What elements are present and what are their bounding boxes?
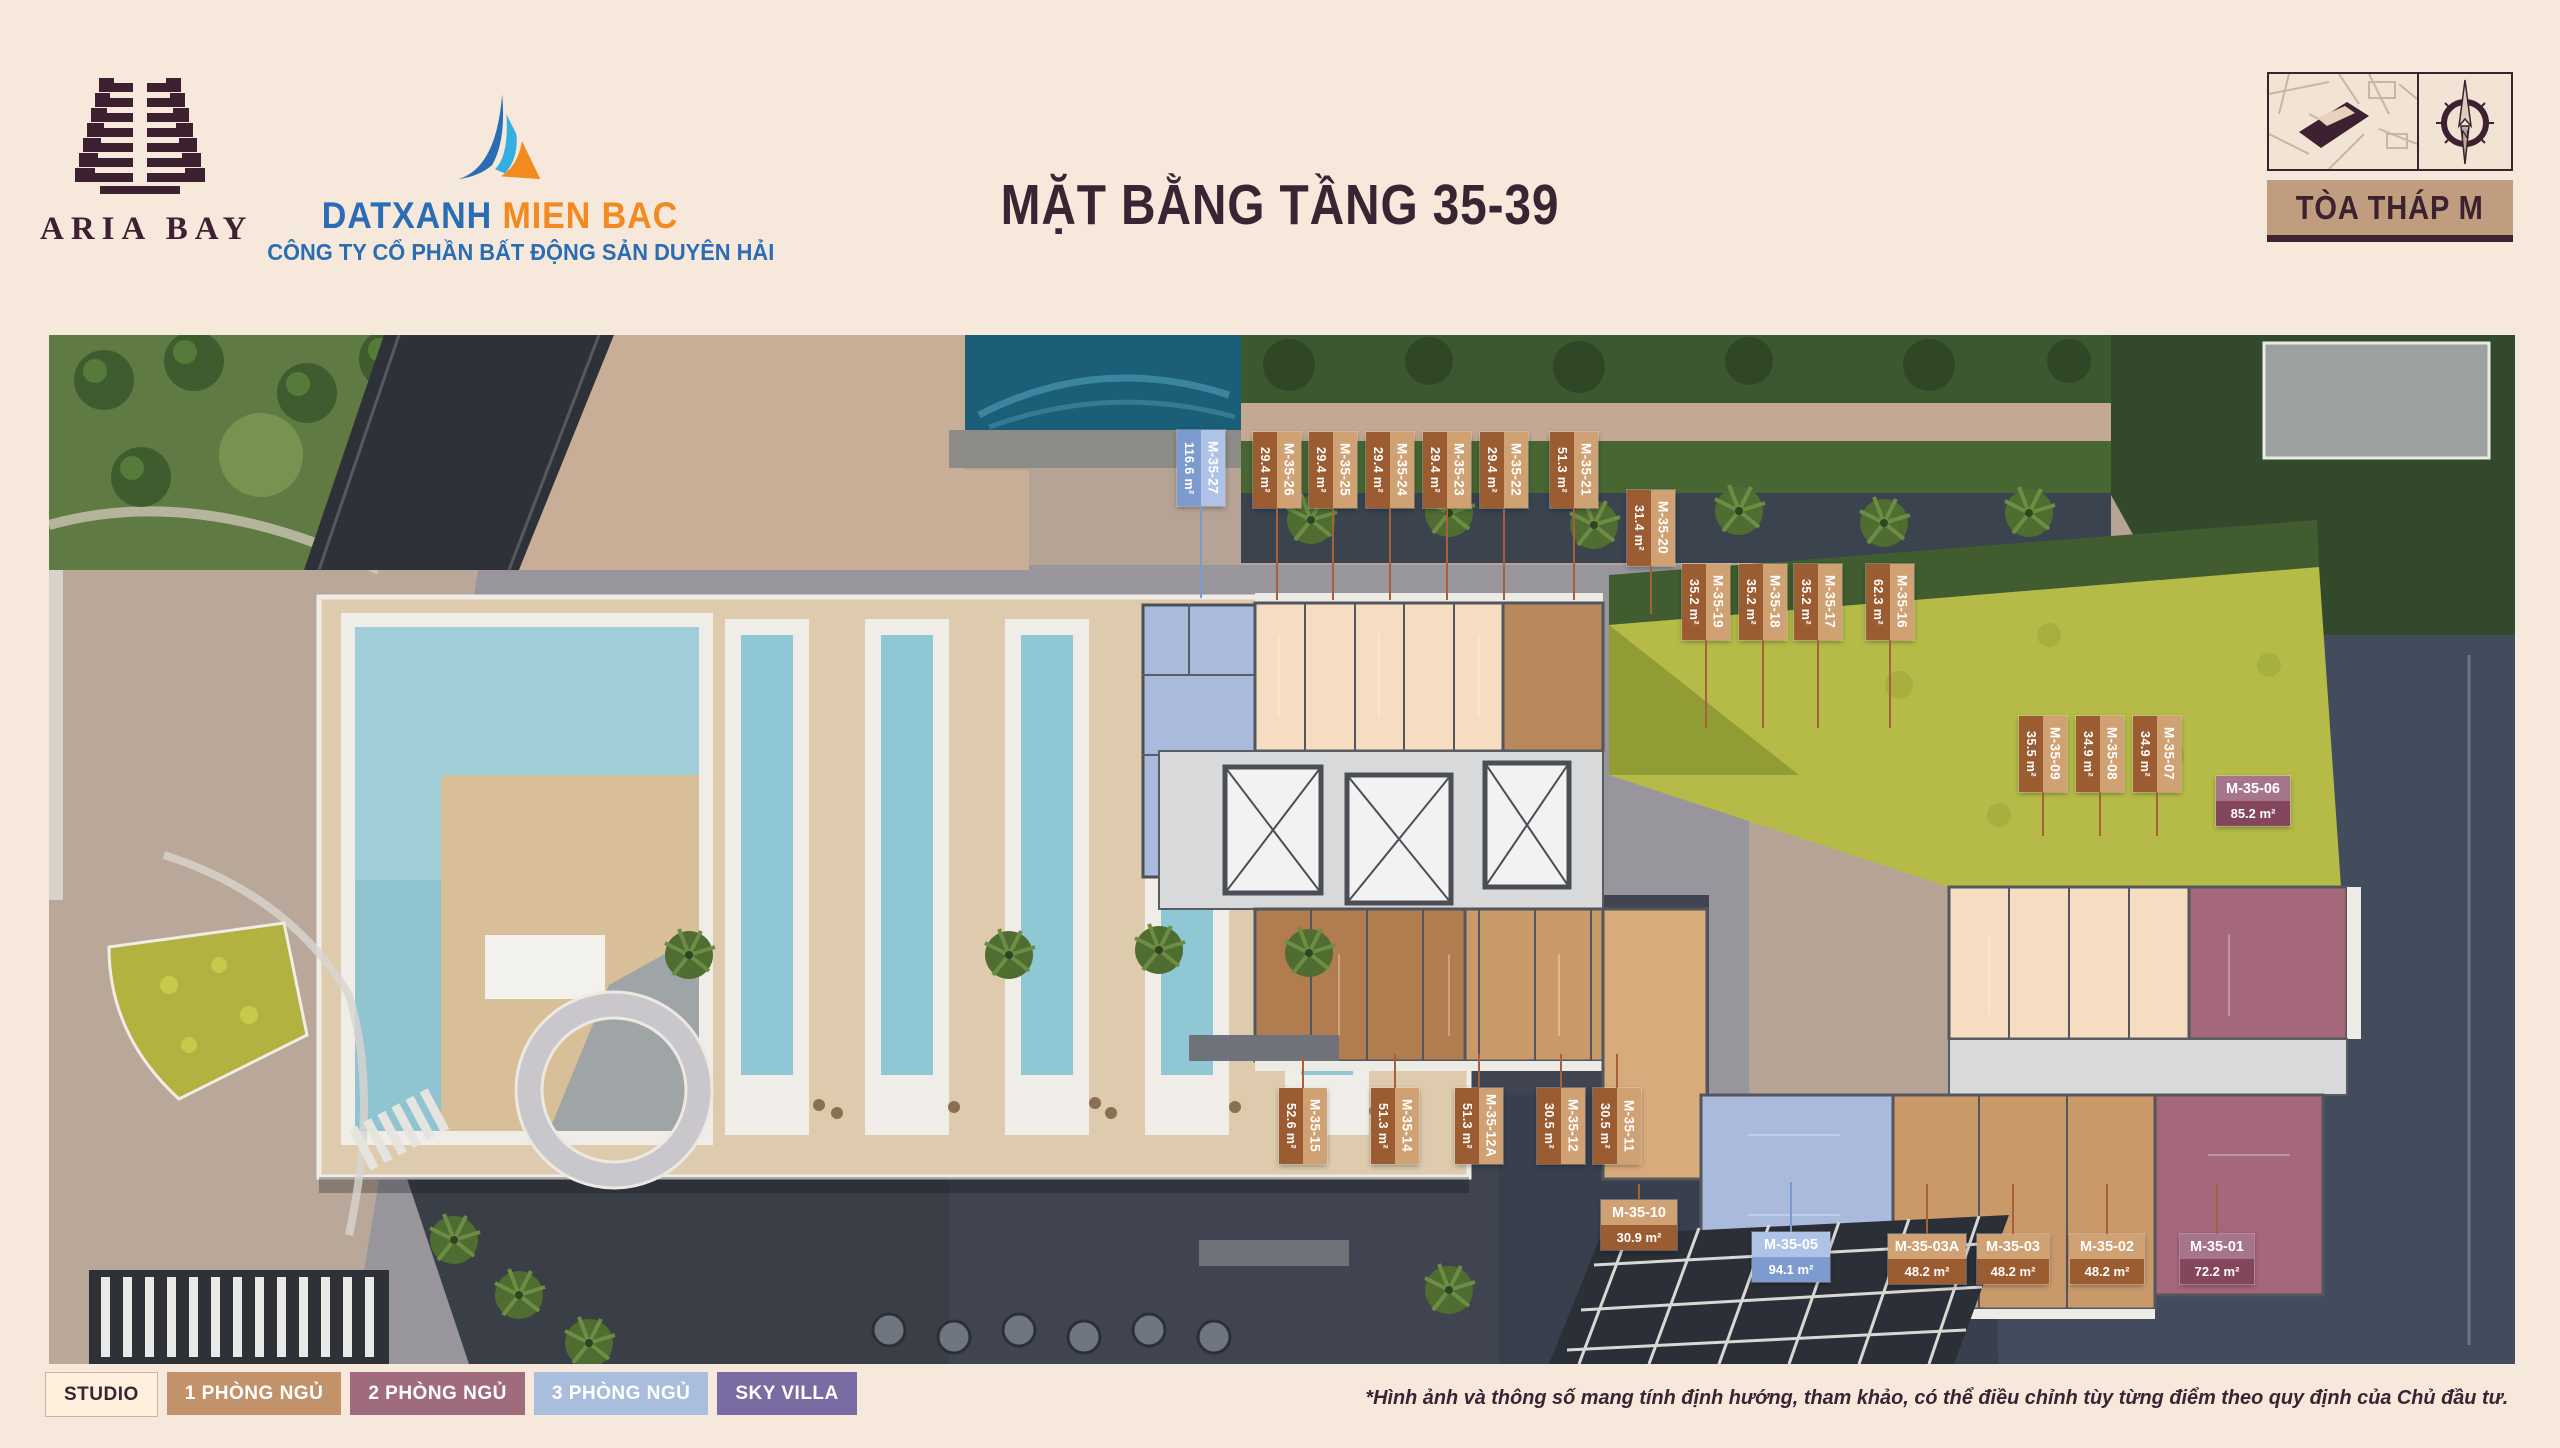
- unit-area: 35.5 m²: [2019, 716, 2043, 792]
- unit-label-m-35-22: 29.4 m²M-35-22: [1480, 432, 1528, 508]
- unit-area: 29.4 m²: [1423, 432, 1447, 508]
- unit-area: 34.9 m²: [2133, 716, 2157, 792]
- unit-area: 34.9 m²: [2076, 716, 2100, 792]
- unit-id: M-35-03: [1977, 1234, 2049, 1259]
- unit-id: M-35-08: [2100, 716, 2124, 792]
- legend-item-1-bedroom: 1 PHÒNG NGỦ: [167, 1372, 342, 1415]
- unit-id: M-35-03A: [1888, 1234, 1966, 1259]
- unit-id: M-35-20: [1651, 490, 1675, 566]
- unit-label-m-35-10: 30.9 m²M-35-10: [1601, 1200, 1677, 1250]
- page-title: MẶT BẰNG TẦNG 35-39: [1001, 172, 1560, 238]
- unit-id: M-35-09: [2043, 716, 2067, 792]
- unit-label-m-35-15: 52.6 m²M-35-15: [1279, 1088, 1327, 1164]
- aria-bay-brand: ARIA BAY: [40, 78, 240, 248]
- unit-id: M-35-16: [1890, 564, 1914, 640]
- aria-bay-logo-icon: [65, 78, 215, 200]
- unit-id: M-35-18: [1763, 564, 1787, 640]
- unit-id: M-35-25: [1333, 432, 1357, 508]
- unit-label-m-35-09: 35.5 m²M-35-09: [2019, 716, 2067, 792]
- unit-id: M-35-12: [1561, 1088, 1585, 1164]
- unit-area: 31.4 m²: [1627, 490, 1651, 566]
- unit-label-m-35-20: 31.4 m²M-35-20: [1627, 490, 1675, 566]
- unit-label-m-35-07: 34.9 m²M-35-07: [2133, 716, 2181, 792]
- unit-id: M-35-07: [2157, 716, 2181, 792]
- tower-badge: TÒA THÁP M: [2267, 180, 2513, 235]
- unit-label-m-35-23: 29.4 m²M-35-23: [1423, 432, 1471, 508]
- unit-area: 30.5 m²: [1593, 1088, 1617, 1164]
- unit-id: M-35-11: [1617, 1088, 1641, 1164]
- legend: STUDIO 1 PHÒNG NGỦ 2 PHÒNG NGỦ 3 PHÒNG N…: [45, 1372, 857, 1417]
- tower-widgets: N TÒA THÁP M: [2267, 72, 2513, 242]
- unit-label-m-35-17: 35.2 m²M-35-17: [1794, 564, 1842, 640]
- unit-label-m-35-03: 48.2 m²M-35-03: [1977, 1234, 2049, 1284]
- unit-area: 35.2 m²: [1794, 564, 1818, 640]
- unit-id: M-35-26: [1277, 432, 1301, 508]
- unit-area: 51.3 m²: [1550, 432, 1574, 508]
- legend-item-sky-villa: SKY VILLA: [717, 1372, 856, 1415]
- legend-item-2-bedroom: 2 PHÒNG NGỦ: [350, 1372, 525, 1415]
- unit-label-m-35-25: 29.4 m²M-35-25: [1309, 432, 1357, 508]
- legend-item-studio: STUDIO: [45, 1372, 158, 1417]
- unit-label-m-35-12a: 51.3 m²M-35-12A: [1455, 1088, 1503, 1164]
- compass-icon: N: [2419, 74, 2511, 169]
- unit-label-m-35-01: 72.2 m²M-35-01: [2180, 1234, 2254, 1284]
- unit-label-m-35-24: 29.4 m²M-35-24: [1366, 432, 1414, 508]
- unit-id: M-35-12A: [1479, 1088, 1503, 1164]
- unit-id: M-35-06: [2216, 776, 2290, 801]
- unit-label-m-35-16: 62.3 m²M-35-16: [1866, 564, 1914, 640]
- unit-area: 116.6 m²: [1177, 430, 1201, 506]
- unit-id: M-35-05: [1752, 1232, 1830, 1257]
- unit-id: M-35-21: [1574, 432, 1598, 508]
- unit-label-m-35-03a: 48.2 m²M-35-03A: [1888, 1234, 1966, 1284]
- unit-id: M-35-24: [1390, 432, 1414, 508]
- unit-id: M-35-02: [2070, 1234, 2144, 1259]
- unit-id: M-35-27: [1201, 430, 1225, 506]
- unit-id: M-35-01: [2180, 1234, 2254, 1259]
- brand-name: ARIA BAY: [40, 211, 240, 248]
- unit-id: M-35-19: [1706, 564, 1730, 640]
- unit-area: 51.3 m²: [1371, 1088, 1395, 1164]
- unit-area: 52.6 m²: [1279, 1088, 1303, 1164]
- unit-label-m-35-21: 51.3 m²M-35-21: [1550, 432, 1598, 508]
- unit-label-m-35-27: 116.6 m²M-35-27: [1177, 430, 1225, 506]
- unit-area: 51.3 m²: [1455, 1088, 1479, 1164]
- agency-block: DATXANH MIEN BAC CÔNG TY CỔ PHẦN BẤT ĐỘN…: [255, 90, 745, 266]
- unit-area: 48.2 m²: [1977, 1259, 2049, 1284]
- datxanh-logo-icon: [446, 90, 554, 182]
- unit-label-m-35-06: 85.2 m²M-35-06: [2216, 776, 2290, 826]
- unit-area: 48.2 m²: [1888, 1259, 1966, 1284]
- unit-label-m-35-05: 94.1 m²M-35-05: [1752, 1232, 1830, 1282]
- unit-area: 48.2 m²: [2070, 1259, 2144, 1284]
- unit-id: M-35-15: [1303, 1088, 1327, 1164]
- agency-company-name: CÔNG TY CỔ PHẦN BẤT ĐỘNG SẢN DUYÊN HẢI: [267, 239, 733, 266]
- unit-area: 29.4 m²: [1480, 432, 1504, 508]
- tower-badge-underline: [2267, 235, 2513, 242]
- unit-area: 30.9 m²: [1601, 1225, 1677, 1250]
- unit-area: 29.4 m²: [1309, 432, 1333, 508]
- unit-area: 85.2 m²: [2216, 801, 2290, 826]
- unit-area: 35.2 m²: [1739, 564, 1763, 640]
- unit-id: M-35-10: [1601, 1200, 1677, 1225]
- unit-label-m-35-02: 48.2 m²M-35-02: [2070, 1234, 2144, 1284]
- unit-label-m-35-26: 29.4 m²M-35-26: [1253, 432, 1301, 508]
- unit-area: 29.4 m²: [1253, 432, 1277, 508]
- agency-name: DATXANH MIEN BAC: [275, 195, 726, 237]
- svg-text:N: N: [2461, 129, 2469, 141]
- disclaimer-text: *Hình ảnh và thông số mang tính định hướ…: [1365, 1386, 2508, 1410]
- unit-label-m-35-12: 30.5 m²M-35-12: [1537, 1088, 1585, 1164]
- unit-id: M-35-22: [1504, 432, 1528, 508]
- legend-item-3-bedroom: 3 PHÒNG NGỦ: [534, 1372, 709, 1415]
- unit-id: M-35-17: [1818, 564, 1842, 640]
- site-location-map-icon: [2269, 74, 2419, 169]
- unit-label-m-35-18: 35.2 m²M-35-18: [1739, 564, 1787, 640]
- unit-area: 30.5 m²: [1537, 1088, 1561, 1164]
- unit-area: 35.2 m²: [1682, 564, 1706, 640]
- unit-label-m-35-08: 34.9 m²M-35-08: [2076, 716, 2124, 792]
- unit-area: 72.2 m²: [2180, 1259, 2254, 1284]
- unit-area: 94.1 m²: [1752, 1257, 1830, 1282]
- unit-id: M-35-23: [1447, 432, 1471, 508]
- unit-label-m-35-11: 30.5 m²M-35-11: [1593, 1088, 1641, 1164]
- unit-id: M-35-14: [1395, 1088, 1419, 1164]
- unit-area: 29.4 m²: [1366, 432, 1390, 508]
- unit-label-m-35-14: 51.3 m²M-35-14: [1371, 1088, 1419, 1164]
- unit-label-m-35-19: 35.2 m²M-35-19: [1682, 564, 1730, 640]
- unit-area: 62.3 m²: [1866, 564, 1890, 640]
